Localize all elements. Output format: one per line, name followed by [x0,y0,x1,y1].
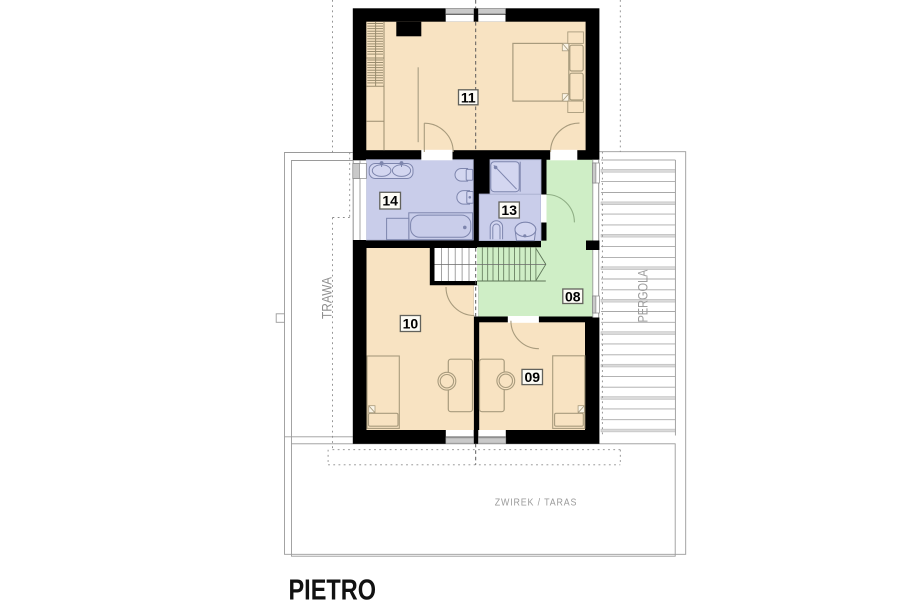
svg-text:ZWIREK / TARAS: ZWIREK / TARAS [495,497,578,509]
svg-text:PERGOLA: PERGOLA [634,269,650,323]
svg-text:13: 13 [501,202,517,218]
svg-text:PIETRO: PIETRO [289,575,377,600]
svg-text:11: 11 [461,89,476,105]
svg-text:09: 09 [524,369,540,385]
svg-text:10: 10 [403,316,419,332]
svg-text:TRAWA: TRAWA [320,277,335,319]
svg-text:14: 14 [382,193,398,209]
svg-text:08: 08 [565,288,581,304]
